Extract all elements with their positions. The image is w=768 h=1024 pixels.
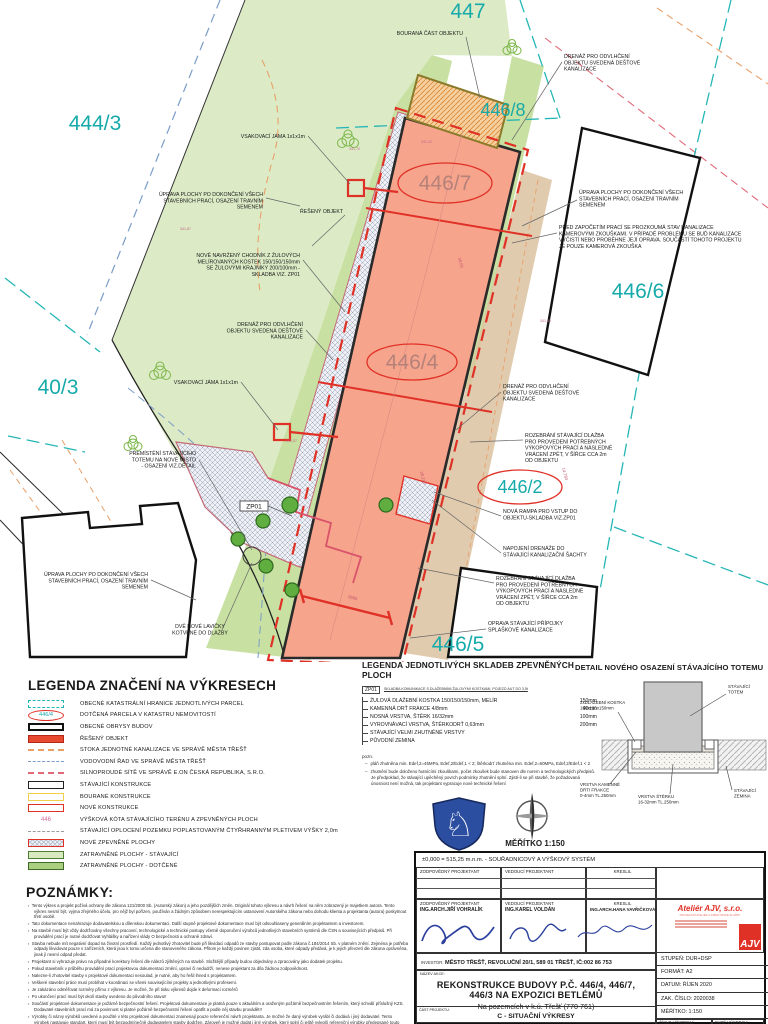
rect-hatch-swatch: [28, 839, 64, 847]
format-row: FORMÁT: A2: [657, 966, 768, 979]
note-item: Výrobky či názvy výrobků uvedené a použi…: [34, 1014, 408, 1024]
layer-row: NOSNÁ VRSTVA, ŠTĚRK 16/32mm100mm: [363, 713, 597, 721]
plan-annotation: ROZEBRÁNÍ STÁVAJÍCÍ DLAŽBAPRO PROVEDENÍ …: [525, 431, 613, 464]
layer-row: ŽULOVÁ DLAŽEBNÍ KOSTKA 150/150/150mm, ME…: [363, 697, 597, 705]
role-1-cell: ZODPOVĚDNÝ PROJEKTANT: [416, 867, 501, 899]
detail-leader-line: [618, 712, 635, 742]
rect-green-light-swatch: [28, 851, 64, 859]
layers-note-label: pozn.: [362, 754, 373, 759]
copy-number-cell: PARÉ VÝKRESU:: [712, 1019, 764, 1024]
layer-list: ŽULOVÁ DLAŽEBNÍ KOSTKA 150/150/150mm, ME…: [362, 697, 597, 745]
plan-annotation: OPRAVA STÁVAJÍCÍ PŘÍPOJKYSPLAŠKOVÉ KANAL…: [488, 619, 563, 633]
sewer-line-2: [657, 8, 768, 84]
parcel-label: 444/3: [69, 112, 122, 135]
legend-item-label: STOKA JEDNOTNÉ KANALIZACE VE SPRÁVĚ MĚST…: [80, 747, 247, 753]
company-logo: AJV: [739, 924, 761, 950]
layers-note-item: zhutnění bude doloženo hutnícími zkouška…: [371, 769, 597, 786]
legend-item: BOURANÉ KONSTRUKCE: [28, 791, 358, 803]
legend-item-label: SILNOPROUDÉ SÍTĚ VE SPRÁVĚ E.ON ČESKÁ RE…: [80, 770, 265, 776]
legend-item-label: BOURANÉ KONSTRUKCE: [80, 794, 151, 800]
zp01-header: ZP01 SKLADBA KOMUNIKACE S DLAŽEBNÍMI ŽUL…: [362, 686, 597, 694]
project-part-cell: ČÁST PROJEKTU: C - SITUAČNÍ VÝKRESY: [416, 1006, 656, 1024]
text-446-swatch: 446: [28, 816, 64, 824]
paving-block-left: [632, 740, 641, 749]
plan-annotation: DRENÁŽ PRO ODVLHČENÍOBJEKTU SVEDENÁ DEŠŤ…: [564, 52, 641, 73]
legend-item: VODOVODNÍ ŘAD VE SPRÁVĚ MĚSTA TŘEŠŤ: [28, 756, 358, 768]
projektant-1-name: ING.ARCH.JIŘÍ VOHRALÍK: [417, 906, 500, 913]
ground-hatch-left: [602, 740, 628, 770]
note-item: Tato dokumentace nenahrazuje dodavatelsk…: [34, 921, 408, 927]
legend-item: NOVÉ ZPEVNĚNÉ PLOCHY: [28, 837, 358, 849]
plan-annotation: BOURANÁ ČÁST OBJEKTU: [397, 30, 463, 37]
role-2-cell: VEDOUCÍ PROJEKTANT: [501, 867, 586, 899]
role-3-cell: KRESLIL: [586, 867, 656, 899]
note-item: Projektant si vyhrazuje právo na případn…: [34, 959, 408, 965]
dimension-text: 14,780: [561, 467, 569, 481]
detail-label: VRSTVA KAMENNÉDRTI FRAKCE0-4mm TL.250mm: [580, 782, 620, 798]
site-plan: ZP01 444/3447446/8446/7446/640/3446/4446…: [0, 0, 768, 662]
totem-detail: STÁVAJÍCÍTOTEM2xDLAŽEBNÍ KOSTKA150x150x1…: [578, 676, 768, 844]
legend-item-label: STÁVAJÍCÍ OPLOCENÍ POZEMKU POPLASTOVANÝM…: [80, 828, 338, 834]
elevation-mark: 341,57: [286, 439, 297, 443]
hline: [416, 888, 656, 889]
building-446-6: [545, 128, 700, 375]
plan-annotation: DRENÁŽ PRO ODVLHČENÍOBJEKTU SVEDENÁ DEŠŤ…: [503, 382, 580, 403]
title-block: ±0,000 = 515,25 m.n.m. - SOUŘADNICOVÝ A …: [414, 851, 766, 1024]
investor-row: INVESTOR: MĚSTO TŘEŠŤ, REVOLUČNÍ 20/1, 5…: [416, 953, 656, 970]
legend-item-label: ŘEŠENÝ OBJEKT: [80, 736, 128, 742]
legend-item-label: VODOVODNÍ ŘAD VE SPRÁVĚ MĚSTA TŘEŠŤ: [80, 759, 206, 765]
horse-icon: ♘: [444, 806, 474, 844]
parcel-label: 446/8: [480, 100, 525, 120]
rect-dash-teal-swatch: [28, 700, 64, 708]
legend-item: STÁVAJÍCÍ OPLOCENÍ POZEMKU POPLASTOVANÝM…: [28, 826, 358, 838]
plan-annotation: NAPOJENÍ DRENÁŽE DOSTÁVAJÍCÍ KANALIZAČNÍ…: [503, 544, 587, 558]
detail-label: STÁVAJÍCÍZEMINA: [734, 788, 757, 798]
legend-item: OBECNÉ KATASTRÁLNÍ HRANICE JEDNOTLIVÝCH …: [28, 698, 358, 710]
legend-item: OBECNÉ OBRYSY BUDOV: [28, 721, 358, 733]
company-cell: Ateliér AJV, s.r.o. PROJEKČNÍ ATELIÉR A …: [656, 899, 764, 953]
note-item: Tento výkres a projekt požívá ochrany dl…: [34, 903, 408, 920]
meritko-row: MĚŘÍTKO: 1:150: [657, 1006, 768, 1019]
parcel-label: 446/2: [497, 477, 542, 497]
ground-hatch-right: [718, 740, 766, 770]
layer-row: PŮVODNÍ ZEMINA: [363, 737, 597, 745]
company-address-lines: [675, 920, 727, 928]
legend-item: 446VÝŠKOVÁ KÓTA STÁVAJÍCÍHO TERÉNU A ZPE…: [28, 814, 358, 826]
plan-annotation: ŘEŠENÝ OBJEKT: [300, 207, 344, 215]
investor-label: INVESTOR:: [421, 960, 444, 965]
notes-items: Tento výkres a projekt požívá ochrany dl…: [26, 903, 408, 1024]
totem-body: [644, 682, 702, 752]
legend-item-label: ZATRAVNĚNÉ PLOCHY - DOTČENÉ: [80, 863, 178, 869]
legend-item-label: ZATRAVNĚNÉ PLOCHY - STÁVAJÍCÍ: [80, 852, 178, 858]
elevation-mark: 341,87: [180, 227, 191, 231]
paving-block-right: [705, 740, 714, 749]
note-item: Je zakázáno odměřovat rozměry přímo z vý…: [34, 987, 408, 993]
notes-title: POZNÁMKY:: [26, 884, 408, 900]
legend-item-label: OBECNÉ KATASTRÁLNÍ HRANICE JEDNOTLIVÝCH …: [80, 701, 244, 707]
detail-title: DETAIL NOVÉHO OSAZENÍ STÁVAJÍCÍHO TOTEMU: [575, 663, 763, 672]
svg-text:ZP01: ZP01: [246, 504, 262, 511]
detail-label: VRSTVA ŠTĚRKU16-32mm TL.250mm: [638, 794, 679, 804]
elevation-mark: 341,32: [421, 140, 432, 144]
plan-annotation: VSAKOVACÍ JÁMA 1x1x1m: [241, 133, 305, 140]
project-title-line2: 446/3 NA EXPOZICI BETLÉMŮ: [417, 990, 655, 1000]
company-name: Ateliér AJV, s.r.o.: [657, 904, 763, 913]
rect-yellow-swatch: [28, 793, 64, 801]
line-dash-red-swatch: [28, 772, 64, 774]
layer-row: STÁVAJÍCÍ VELMI ZHUTNĚNÉ VRSTVY: [363, 729, 597, 737]
parcel-label: 446/4: [386, 351, 439, 374]
legend-item-label: OBECNÉ OBRYSY BUDOV: [80, 724, 153, 730]
layer-row: VYROVNÁVACÍ VRSTVA, ŠTĚRKODRŤ 0,63mm200m…: [363, 721, 597, 729]
company-tagline: PROJEKČNÍ ATELIÉR A INŽENÝRSKÉ SLUŽBY: [657, 913, 763, 917]
signatures: [418, 917, 656, 951]
legend-item: STOKA JEDNOTNÉ KANALIZACE VE SPRÁVĚ MĚST…: [28, 744, 358, 756]
legend-item: ZATRAVNĚNÉ PLOCHY - DOTČENÉ: [28, 860, 358, 872]
line-dash-blue-swatch: [28, 761, 64, 762]
zp01-code: ZP01: [362, 686, 380, 694]
drawing-sheet: ZP01 444/3447446/8446/7446/640/3446/4446…: [0, 0, 768, 1024]
note-item: Součástí projektové dokumentace je požár…: [34, 1001, 408, 1012]
legend-symbols-items: OBECNÉ KATASTRÁLNÍ HRANICE JEDNOTLIVÝCH …: [28, 698, 358, 872]
rect-black-swatch: [28, 781, 64, 789]
project-part-label: ČÁST PROJEKTU:: [419, 1008, 450, 1012]
layer-row: KAMENNÁ DRŤ FRAKCE 4/8mm40mm: [363, 705, 597, 713]
rect-green-dark-swatch: [28, 862, 64, 870]
legend-item-label: VÝŠKOVÁ KÓTA STÁVAJÍCÍHO TERÉNU A ZPEVNĚ…: [80, 817, 258, 823]
legend-item: NOVÉ KONSTRUKCE: [28, 802, 358, 814]
legend-layers: LEGENDA JEDNOTLIVÝCH SKLADEB ZPEVNĚNÝCH …: [362, 660, 597, 786]
notes-section: POZNÁMKY: Tento výkres a projekt požívá …: [26, 884, 408, 1024]
legend-item: SILNOPROUDÉ SÍTĚ VE SPRÁVĚ E.ON ČESKÁ RE…: [28, 768, 358, 780]
legend-item-label: NOVÉ ZPEVNĚNÉ PLOCHY: [80, 840, 155, 846]
note-item: Po ukončení prací musí být okolí stavby …: [34, 994, 408, 1000]
plan-annotation: PŘEMÍSTĚNÍ STÁVAJÍCÍHOTOTEMU NA NOVÉ MÍS…: [129, 449, 196, 470]
parcel-label: 40/3: [38, 376, 79, 399]
detail-label: 2xDLAŽEBNÍ KOSTKA150x150x150mm: [580, 700, 625, 710]
datum-row: DATUM: ŘÍJEN 2020: [657, 979, 768, 992]
trest-coat-of-arms: ♘: [430, 796, 488, 852]
legend-symbols-title: LEGENDA ZNAČENÍ NA VÝKRESECH: [28, 678, 358, 693]
layers-note-item: pláň zhutněna min. Edef,2=45MPa, Edef,2/…: [371, 761, 597, 767]
hline: [416, 878, 656, 879]
legend-item-label: NOVÉ KONSTRUKCE: [80, 805, 139, 811]
project-name-label: NÁZEV AKCE:: [420, 972, 445, 976]
line-dash-orange-swatch: [28, 749, 64, 751]
elevation-mark: 341,70: [349, 147, 360, 151]
note-item: Veškeré stavební práce musí probíhat v k…: [34, 980, 408, 986]
legend-item-label: STÁVAJÍCÍ KONSTRUKCE: [80, 782, 151, 788]
investor-value: MĚSTO TŘEŠŤ, REVOLUČNÍ 20/1, 589 01 TŘEŠ…: [445, 960, 612, 966]
note-item: Stavba nebude mít negativní dopad na živ…: [34, 941, 408, 958]
ellipse-446-swatch: 446/4: [28, 710, 64, 721]
legend-layers-title: LEGENDA JEDNOTLIVÝCH SKLADEB ZPEVNĚNÝCH …: [362, 660, 597, 680]
detail-label: STÁVAJÍCÍTOTEM: [728, 684, 751, 694]
rect-black-thick-swatch: [28, 723, 64, 731]
legend-symbols: LEGENDA ZNAČENÍ NA VÝKRESECH OBECNÉ KATA…: [28, 678, 358, 872]
plan-annotation: VSAKOVACÍ JÁMA 1x1x1m: [174, 379, 238, 386]
legend-item: 446/4DOTČENÁ PARCELA V KATASTRU NEMOVITO…: [28, 710, 358, 722]
elevation-mark: 341,35: [540, 319, 551, 323]
zak-cislo-row: ZAK. ČÍSLO: 2020038: [657, 993, 768, 1006]
rect-red-swatch: [28, 804, 64, 812]
note-item: Na stavbě musí být vždy dodržovány všech…: [34, 928, 408, 939]
rect-red-fill-swatch: [28, 735, 64, 743]
legend-item: ŘEŠENÝ OBJEKT: [28, 733, 358, 745]
plan-annotation: DVĚ NOVÉ LAVIČKYKOTVENÉ DO DLAŽBY: [172, 622, 228, 636]
zp01-caption: SKLADBA KOMUNIKACE S DLAŽEBNÍMI ŽULOVÝMI…: [384, 686, 528, 691]
stupen-row: STUPEŇ: DUR+DSP: [657, 953, 768, 966]
scale-label: MĚŘÍTKO 1:150: [500, 839, 570, 848]
note-item: Nalezne-li zhotovitel stavby v projektov…: [34, 973, 408, 979]
drawing-number-cell: ČÍSLO VÝKRESU:: [656, 1019, 712, 1024]
meta-stack: STUPEŇ: DUR+DSP FORMÁT: A2 DATUM: ŘÍJEN …: [656, 953, 765, 1022]
empty-cell: [656, 867, 764, 899]
parcel-label: 447: [450, 0, 485, 23]
parcel-label: 446/7: [419, 172, 472, 195]
kreslil-name: ING.ARCH.HANA VAVŘIČKOVÁ: [587, 906, 655, 912]
project-part-value: C - SITUAČNÍ VÝKRESY: [417, 1013, 655, 1020]
project-title-line1: REKONSTRUKCE BUDOVY P.Č. 446/4, 446/7,: [417, 980, 655, 990]
projektant-2-name: ING.KAREL VOLDÁN: [502, 906, 585, 913]
line-fence-swatch: [28, 831, 64, 832]
parcel-label: 446/6: [612, 280, 665, 303]
datum-system-line: ±0,000 = 515,25 m.n.m. - SOUŘADNICOVÝ A …: [416, 853, 768, 867]
legend-item: ZATRAVNĚNÉ PLOCHY - STÁVAJÍCÍ: [28, 849, 358, 861]
north-arrow-icon: [508, 792, 556, 840]
plan-annotation: NOVÁ RAMPA PRO VSTUP DOOBJEKTU-SKLADBA V…: [503, 508, 577, 521]
legend-item-label: DOTČENÁ PARCELA V KATASTRU NEMOVITOSTÍ: [80, 712, 216, 718]
parcel-label: 446/5: [432, 633, 485, 656]
note-item: Pokud stavebník v průběhu provádění prac…: [34, 966, 408, 972]
layers-note: pozn. pláň zhutněna min. Edef,2=45MPa, E…: [362, 754, 597, 786]
legend-item: STÁVAJÍCÍ KONSTRUKCE: [28, 779, 358, 791]
